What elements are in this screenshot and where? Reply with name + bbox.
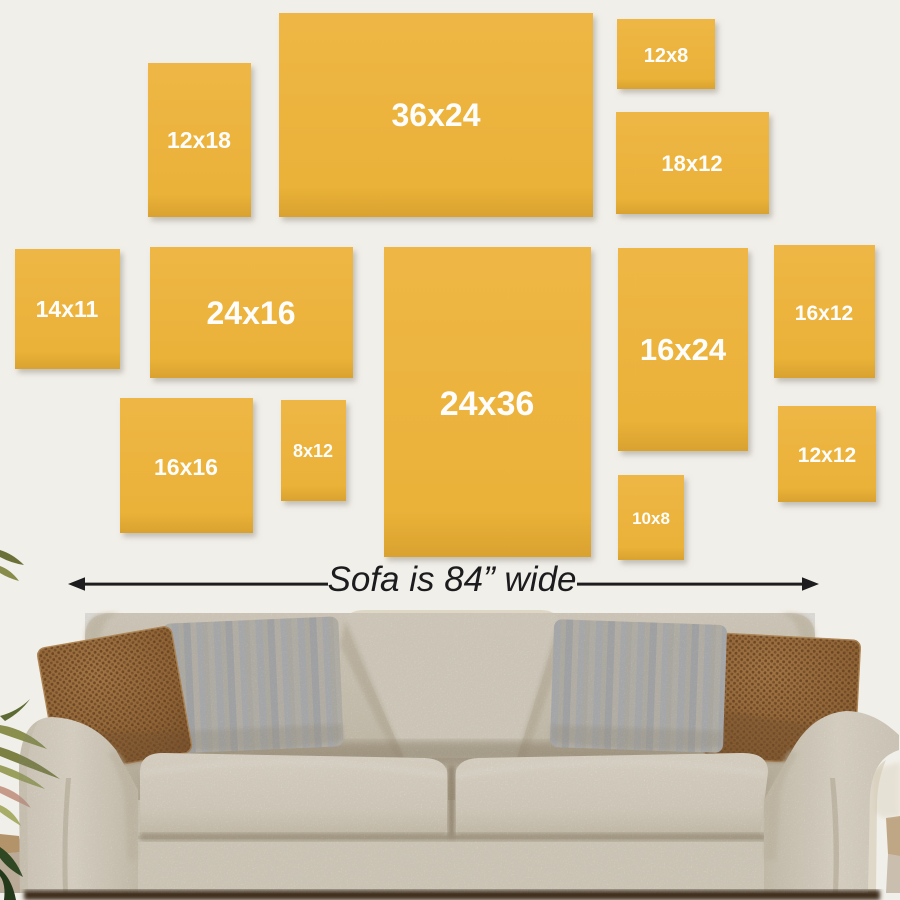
svg-text:10x8: 10x8 — [632, 509, 670, 528]
svg-text:16x24: 16x24 — [640, 332, 727, 367]
svg-text:12x18: 12x18 — [167, 127, 231, 153]
svg-text:14x11: 14x11 — [36, 296, 99, 322]
svg-text:8x12: 8x12 — [293, 441, 333, 461]
svg-text:36x24: 36x24 — [392, 97, 481, 133]
svg-text:24x36: 24x36 — [440, 385, 535, 423]
svg-text:18x12: 18x12 — [661, 151, 722, 176]
svg-text:16x12: 16x12 — [795, 302, 853, 325]
svg-text:12x12: 12x12 — [798, 444, 856, 467]
svg-text:Sofa is 84” wide: Sofa is 84” wide — [327, 560, 576, 599]
svg-text:12x8: 12x8 — [644, 45, 689, 67]
svg-text:24x16: 24x16 — [207, 295, 296, 331]
svg-text:16x16: 16x16 — [154, 454, 218, 480]
